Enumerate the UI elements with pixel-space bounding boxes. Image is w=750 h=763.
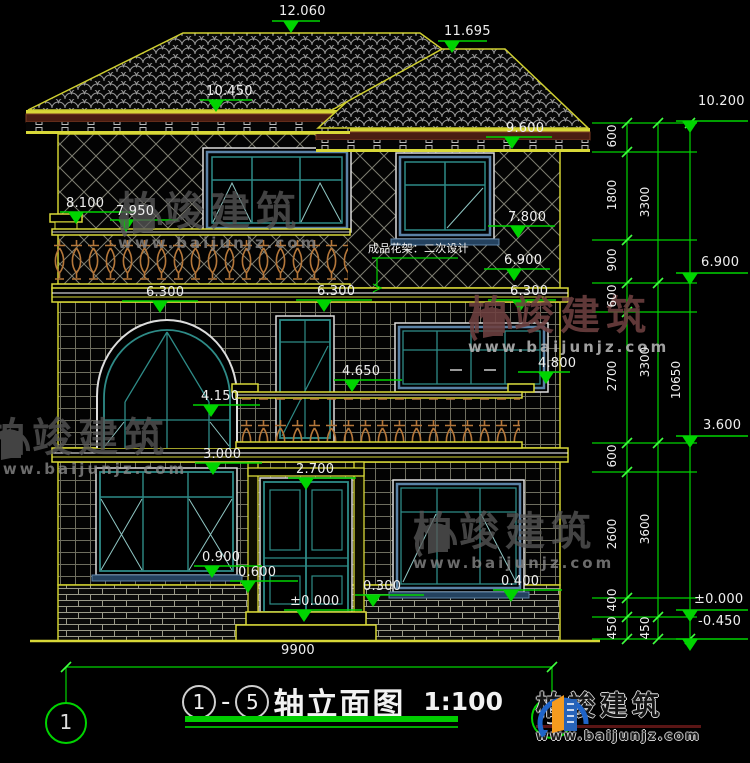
- lvl-0400: 0.400: [501, 575, 539, 589]
- lvl-3600-symbol: [676, 436, 748, 448]
- vdim-1800-1: 1800: [606, 167, 618, 223]
- lvl-10200-symbol: [676, 121, 748, 133]
- lvl-minus0450-symbol: [676, 639, 748, 651]
- lvl-6900-right: 6.900: [701, 256, 739, 270]
- vdim-3300-9: 3300: [639, 174, 651, 230]
- axis-label-1: 1: [60, 711, 73, 733]
- lvl-3000: 3.000: [203, 448, 241, 462]
- lvl-7800: 7.800: [508, 211, 546, 225]
- lvl-11695: 11.695: [444, 25, 491, 39]
- brand-logo: 柏竣建筑 www.baijunjz.com: [536, 684, 701, 744]
- vdim-2700-4: 2700: [606, 348, 618, 404]
- hdim-9900: 9900: [281, 644, 315, 658]
- title-underline-thin: [185, 726, 458, 728]
- balusters: [238, 398, 520, 442]
- balusters: [54, 235, 348, 285]
- door-step: [236, 625, 376, 641]
- vdim-10650-13: 10650: [670, 352, 682, 408]
- lvl-4150: 4.150: [201, 390, 239, 404]
- title-axis-start-bubble: 1: [182, 685, 216, 719]
- lvl-6300-left: 6.300: [146, 286, 184, 300]
- vdim-600-0: 600: [606, 108, 618, 164]
- lvl-6300-mid: 6.300: [317, 285, 355, 299]
- title-axis-end-bubble: 5: [235, 685, 269, 719]
- vdim-3300-10: 3300: [639, 334, 651, 390]
- cad-canvas: 柏竣建筑 www.baijunjz.com 柏竣建筑 www.baijunjz.…: [0, 0, 750, 763]
- lvl-minus0450: -0.450: [698, 615, 741, 629]
- lvl-9600: 9.600: [506, 122, 544, 136]
- lvl-6300-right: 6.300: [510, 285, 548, 299]
- vdim-600-3: 600: [606, 268, 618, 324]
- lvl-0300: 0.300: [363, 580, 401, 594]
- lvl-0000-right: ±0.000: [694, 593, 743, 607]
- lvl-8100: 8.100: [66, 197, 104, 211]
- vdim-450-12: 450: [639, 600, 651, 656]
- vdim-600-5: 600: [606, 428, 618, 484]
- lvl-3600: 3.600: [703, 419, 741, 433]
- drawing-scale: 1:100: [423, 687, 503, 716]
- vdim-2600-6: 2600: [606, 506, 618, 562]
- second-floor-balcony: [232, 384, 534, 448]
- lvl-0000-mid: ±0.000: [290, 595, 339, 609]
- lvl-12060-symbol: [272, 21, 320, 33]
- brand-logo-icon: [536, 684, 590, 750]
- lvl-4800: 4.800: [538, 357, 576, 371]
- lvl-4650: 4.650: [342, 365, 380, 379]
- vdim-3600-11: 3600: [639, 501, 651, 557]
- note-flower-rack: 成品花架：二次设计: [368, 243, 469, 255]
- title-underline-thick: [185, 716, 458, 722]
- lvl-12060: 12.060: [279, 5, 326, 19]
- vdim-450-8: 450: [606, 600, 618, 656]
- lvl-0900: 0.900: [202, 551, 240, 565]
- title-separator: -: [221, 687, 230, 717]
- lvl-2700: 2.700: [296, 463, 334, 477]
- lvl-10200: 10.200: [698, 95, 745, 109]
- elevation-drawing: [0, 0, 750, 763]
- lvl-10450: 10.450: [206, 85, 253, 99]
- lvl-7950: 7.950: [116, 205, 154, 219]
- lvl-0600: 0.600: [238, 566, 276, 580]
- lvl-6900-mid: 6.900: [504, 254, 542, 268]
